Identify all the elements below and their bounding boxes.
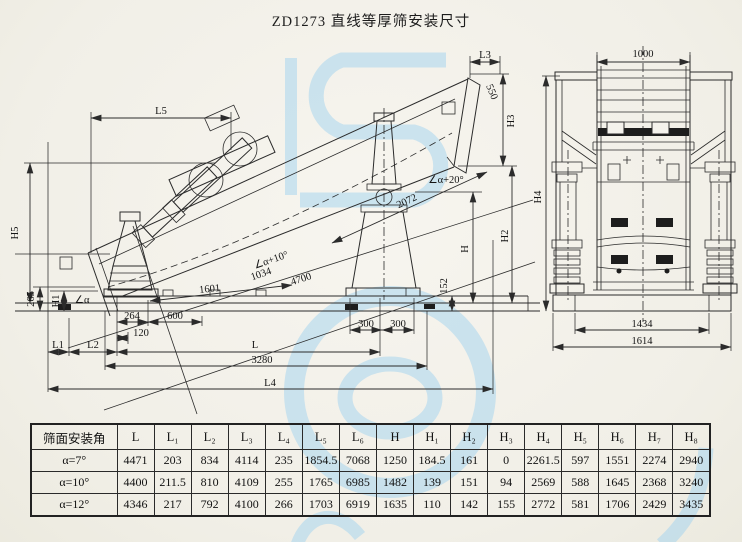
header-col: L₂: [191, 424, 228, 450]
dim-label-l: L: [252, 340, 258, 351]
cell: 1854.5: [302, 450, 339, 472]
cell: 581: [562, 494, 599, 517]
vibration-exciter: [132, 105, 275, 247]
table-row-angle12: α=12° 4346 217 792 4100 266 1703 6919 16…: [31, 494, 710, 517]
header-col: H₅: [562, 424, 599, 450]
header-angle: 筛面安装角: [31, 424, 117, 450]
dim-label-550: 550: [483, 83, 499, 102]
cell: 2368: [636, 472, 673, 494]
cell: 3240: [673, 472, 710, 494]
end-view-extensions: [542, 52, 731, 351]
header-col: L₅: [302, 424, 339, 450]
cell: 597: [562, 450, 599, 472]
end-view-base: [553, 295, 731, 311]
dim-label-l2: L2: [87, 340, 99, 351]
cell: 211.5: [154, 472, 191, 494]
cell: 4346: [117, 494, 154, 517]
cell: 1706: [599, 494, 636, 517]
header-col: L₆: [339, 424, 376, 450]
cell: 203: [154, 450, 191, 472]
cell: 2569: [525, 472, 562, 494]
end-view-dimension-lines: [546, 62, 731, 347]
end-view-drawing: 1000 H4 1434 1614: [533, 46, 737, 351]
table-row-angle7: α=7° 4471 203 834 4114 235 1854.5 7068 1…: [31, 450, 710, 472]
dim-label-300b: 300: [390, 319, 406, 330]
header-col: L: [117, 424, 154, 450]
dim-label-l3: L3: [479, 50, 491, 61]
end-view-labels: 1000 H4 1434 1614: [533, 49, 654, 347]
dim-label-h2: H2: [500, 230, 511, 243]
dim-label-1434: 1434: [632, 319, 654, 330]
dim-label-3280: 3280: [252, 355, 273, 366]
cell: 2274: [636, 450, 673, 472]
dim-label-h3: H3: [506, 115, 517, 128]
dim-label-h: H: [460, 245, 471, 253]
header-col: H: [376, 424, 413, 450]
header-col: H₂: [451, 424, 488, 450]
dim-label-h1: H1: [51, 295, 62, 308]
cell: 4471: [117, 450, 154, 472]
cell: 110: [414, 494, 451, 517]
cell: 139: [414, 472, 451, 494]
cell: 1765: [302, 472, 339, 494]
cell: 217: [154, 494, 191, 517]
dim-label-265: 265: [26, 291, 37, 307]
scanned-drawing-page: ZD1273 直线等厚筛安装尺寸: [0, 0, 742, 542]
base-frame: [15, 290, 540, 311]
cell: 4400: [117, 472, 154, 494]
cell: 4114: [228, 450, 265, 472]
cell: 6919: [339, 494, 376, 517]
cell: 1551: [599, 450, 636, 472]
dim-label-h4: H4: [533, 190, 544, 204]
dim-label-264: 264: [124, 311, 141, 322]
dim-label-1000: 1000: [633, 49, 654, 60]
cell: 1703: [302, 494, 339, 517]
cell: 184.5: [414, 450, 451, 472]
dim-label-120: 120: [133, 328, 149, 339]
cell: 2429: [636, 494, 673, 517]
cell: 266: [265, 494, 302, 517]
table-header-row: 筛面安装角 L L₁ L₂ L₃ L₄ L₅ L₆ H H₁ H₂ H₃ H₄ …: [31, 424, 710, 450]
dim-label-l1: L1: [52, 340, 64, 351]
header-col: H₇: [636, 424, 673, 450]
installation-drawing: L5 H5 265 H1 ∠α L1 L2 264 600 120 1601 ∠…: [0, 0, 742, 420]
header-col: H₈: [673, 424, 710, 450]
coil-spring-right: [707, 250, 733, 283]
dim-label-300a: 300: [358, 319, 374, 330]
dim-label-1614: 1614: [632, 336, 654, 347]
dimension-lines: [30, 62, 512, 389]
dim-label-alpha10: ∠α+10°: [252, 249, 290, 272]
cell: 1250: [376, 450, 413, 472]
cell-angle: α=7°: [31, 450, 117, 472]
header-col: H₆: [599, 424, 636, 450]
cell: 588: [562, 472, 599, 494]
cell: 1482: [376, 472, 413, 494]
header-col: H₃: [488, 424, 525, 450]
cell: 155: [488, 494, 525, 517]
dim-label-4700: 4700: [290, 271, 313, 288]
table-row-angle10: α=10° 4400 211.5 810 4109 255 1765 6985 …: [31, 472, 710, 494]
side-view-labels: L5 H5 265 H1 ∠α L1 L2 264 600 120 1601 ∠…: [10, 50, 517, 389]
dim-label-1034: 1034: [249, 266, 273, 283]
dimension-table-wrap: 筛面安装角 L L₁ L₂ L₃ L₄ L₅ L₆ H H₁ H₂ H₃ H₄ …: [30, 423, 711, 517]
side-view-drawing: L5 H5 265 H1 ∠α L1 L2 264 600 120 1601 ∠…: [10, 50, 540, 414]
cell: 0: [488, 450, 525, 472]
header-col: H₁: [414, 424, 451, 450]
cell: 834: [191, 450, 228, 472]
cell: 1645: [599, 472, 636, 494]
cell: 7068: [339, 450, 376, 472]
header-col: L₃: [228, 424, 265, 450]
header-col: H₄: [525, 424, 562, 450]
cell: 792: [191, 494, 228, 517]
dim-label-1601: 1601: [199, 283, 221, 296]
cell: 2261.5: [525, 450, 562, 472]
cell: 810: [191, 472, 228, 494]
cell: 2772: [525, 494, 562, 517]
end-view-frame: [550, 46, 737, 322]
end-view-screen-box: [593, 55, 694, 290]
header-col: L₄: [265, 424, 302, 450]
cell: 235: [265, 450, 302, 472]
cell: 4109: [228, 472, 265, 494]
cell-angle: α=10°: [31, 472, 117, 494]
dim-label-600: 600: [167, 311, 183, 322]
dimension-table: 筛面安装角 L L₁ L₂ L₃ L₄ L₅ L₆ H H₁ H₂ H₃ H₄ …: [30, 423, 711, 517]
cell: 255: [265, 472, 302, 494]
dim-label-l4: L4: [264, 378, 276, 389]
cell: 3435: [673, 494, 710, 517]
coil-spring-left: [554, 250, 580, 283]
dim-label-alpha20: ∠α+20°: [428, 174, 464, 186]
dim-label-l5: L5: [155, 106, 167, 117]
cell: 142: [451, 494, 488, 517]
dim-label-h5: H5: [10, 227, 21, 240]
cell: 161: [451, 450, 488, 472]
cell: 94: [488, 472, 525, 494]
cell: 2940: [673, 450, 710, 472]
dim-label-152: 152: [439, 278, 450, 294]
cell: 6985: [339, 472, 376, 494]
header-col: L₁: [154, 424, 191, 450]
cell: 1635: [376, 494, 413, 517]
cell-angle: α=12°: [31, 494, 117, 517]
cell: 151: [451, 472, 488, 494]
dim-label-alpha: ∠α: [75, 294, 90, 306]
cell: 4100: [228, 494, 265, 517]
